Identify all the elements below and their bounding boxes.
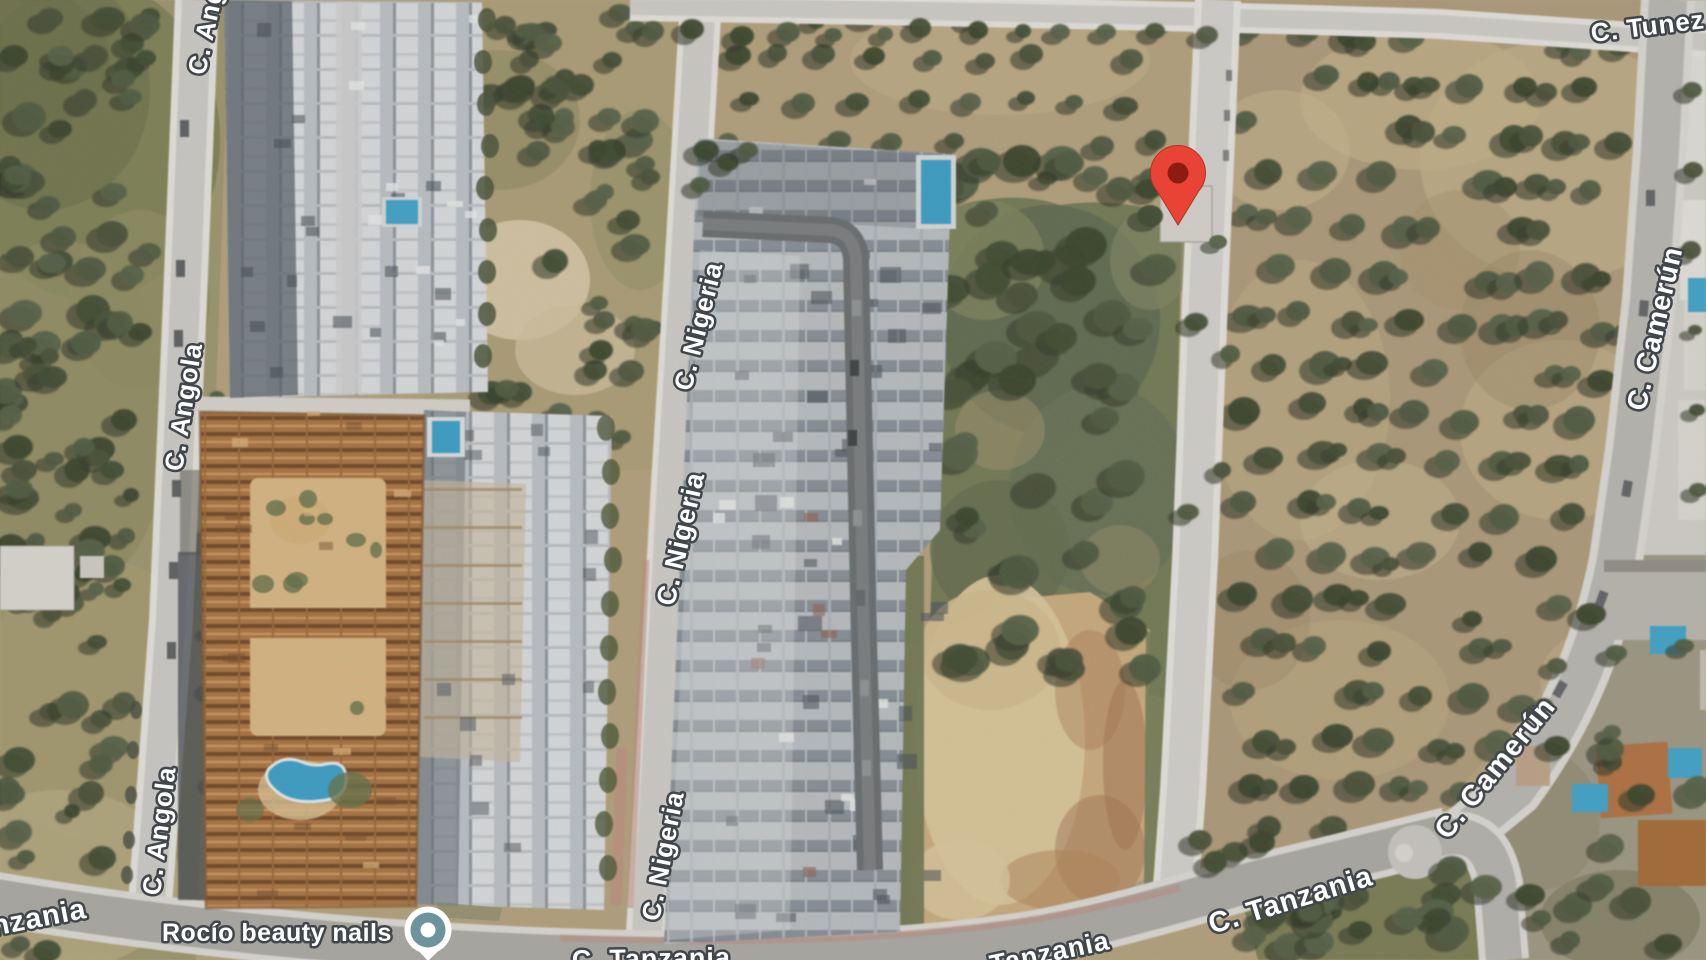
svg-text:Rocío beauty nails: Rocío beauty nails — [162, 919, 392, 947]
svg-text:C. Tanzania: C. Tanzania — [572, 942, 732, 960]
